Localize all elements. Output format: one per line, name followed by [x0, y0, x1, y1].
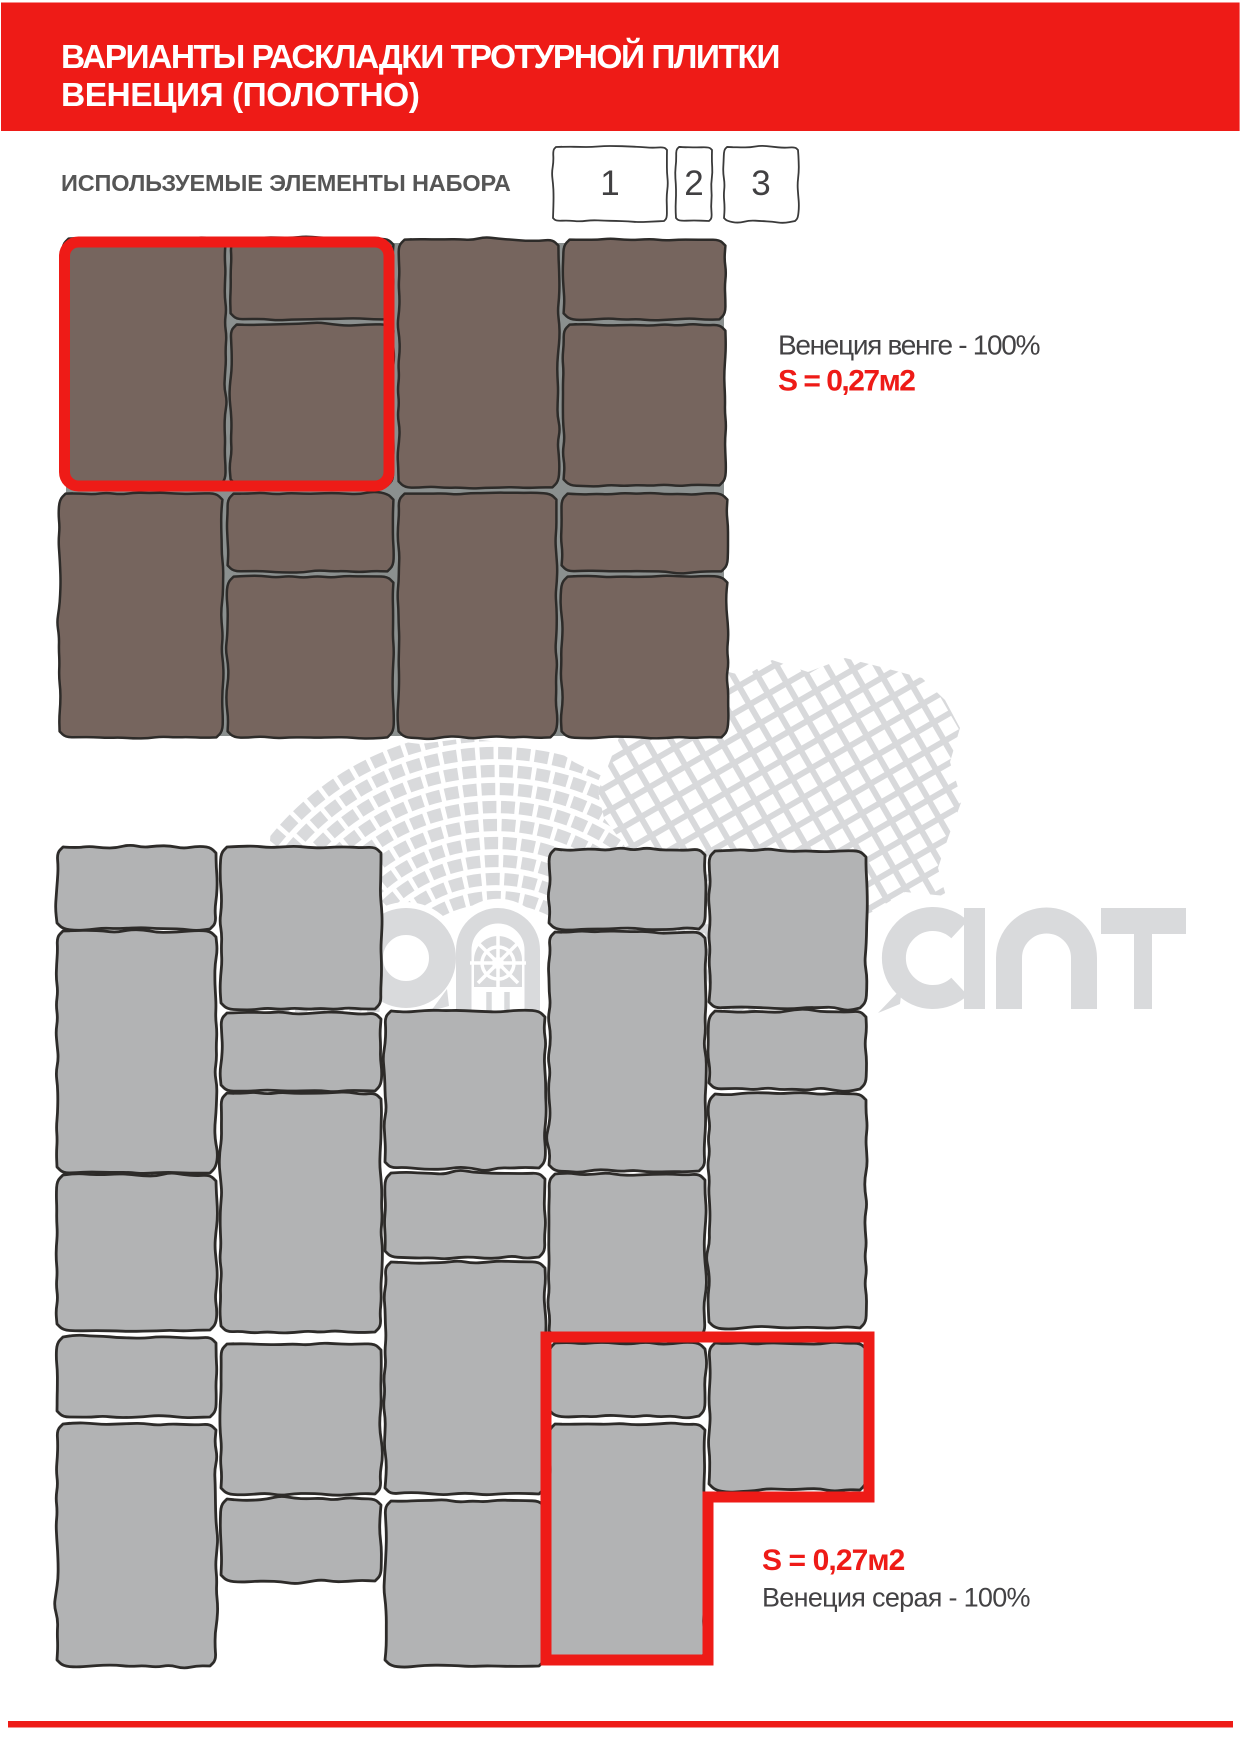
svg-text:S = 0,27м2: S = 0,27м2 — [778, 365, 915, 398]
svg-text:2: 2 — [684, 164, 703, 203]
svg-text:Венеция венге - 100%: Венеция венге - 100% — [778, 330, 1040, 361]
svg-text:3: 3 — [751, 164, 770, 203]
svg-text:S = 0,27м2: S = 0,27м2 — [762, 1544, 905, 1577]
svg-text:Венеция серая - 100%: Венеция серая - 100% — [762, 1583, 1031, 1613]
svg-text:ИСПОЛЬЗУЕМЫЕ ЭЛЕМЕНТЫ НАБОРА: ИСПОЛЬЗУЕМЫЕ ЭЛЕМЕНТЫ НАБОРА — [61, 170, 511, 196]
svg-text:ВЕНЕЦИЯ (ПОЛОТНО): ВЕНЕЦИЯ (ПОЛОТНО) — [61, 77, 419, 114]
svg-text:1: 1 — [600, 164, 619, 203]
svg-text:ВАРИАНТЫ РАСКЛАДКИ ТРОТУРНОЙ П: ВАРИАНТЫ РАСКЛАДКИ ТРОТУРНОЙ ПЛИТКИ — [61, 37, 779, 76]
